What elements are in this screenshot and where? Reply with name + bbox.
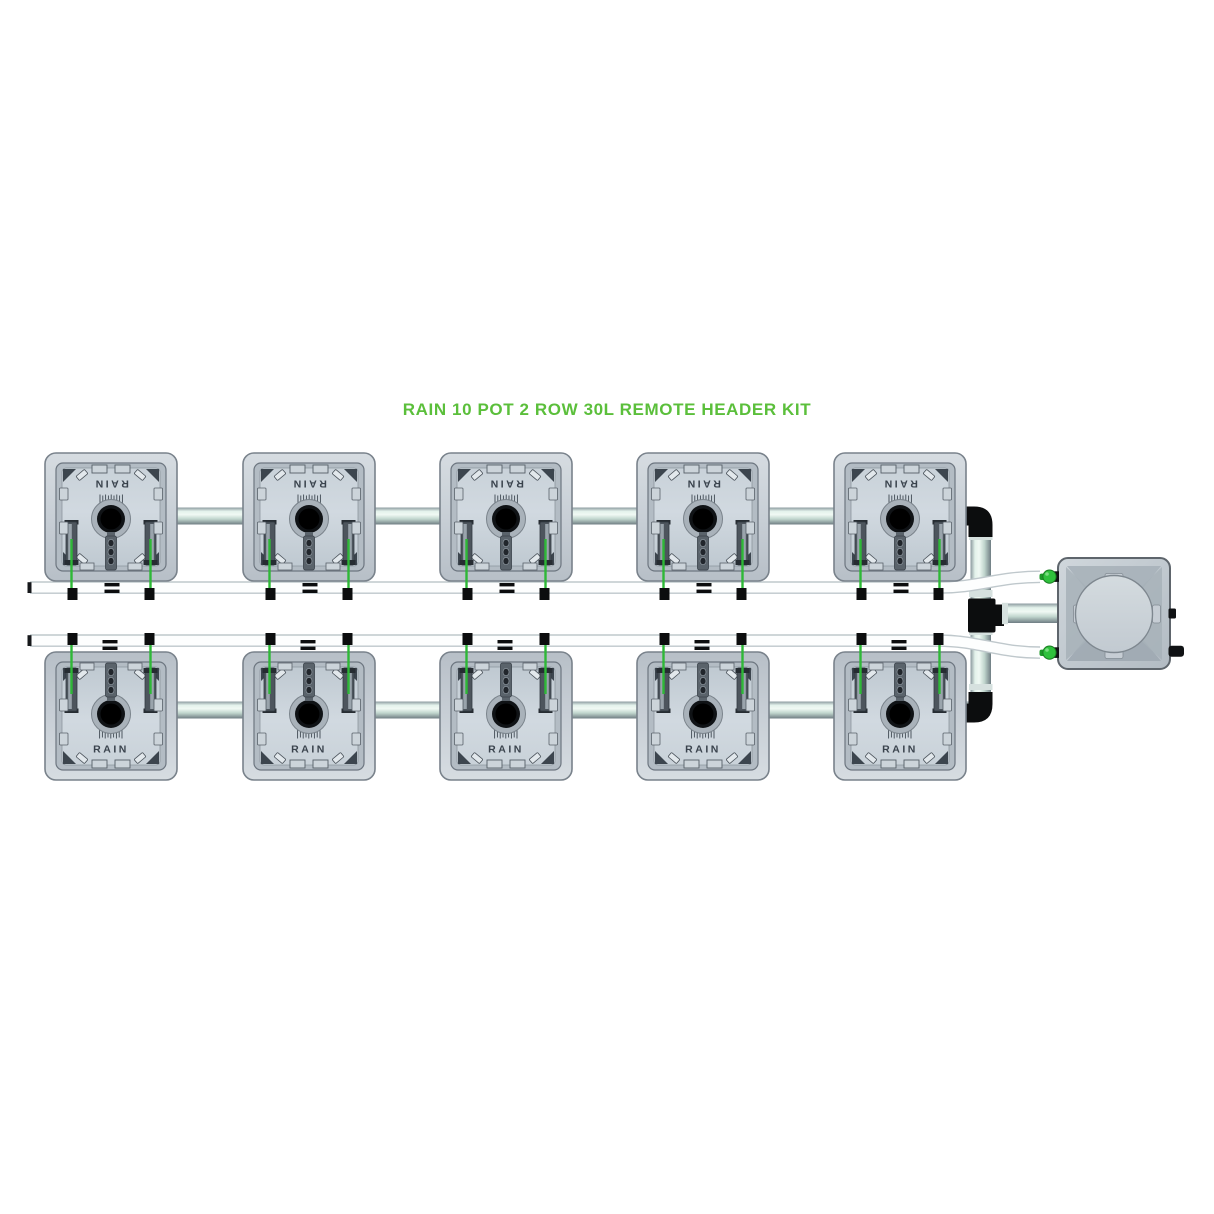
- remote-header-tank: [1040, 558, 1185, 669]
- pot-r1-c2: [243, 453, 375, 600]
- pot-r2-c1: [45, 633, 177, 780]
- tee-fitting: [968, 599, 996, 633]
- tube-end-plug: [28, 635, 32, 646]
- inlet-fitting-top: [1040, 570, 1060, 583]
- pot-r1-c1: [45, 453, 177, 600]
- pot-r1-c4: [637, 453, 769, 600]
- system-diagram: RAIN: [0, 0, 1214, 1214]
- side-port-outlet: [1169, 646, 1185, 657]
- pot-r2-c4: [637, 633, 769, 780]
- kit-diagram: RAIN 10 POT 2 ROW 30L REMOTE HEADER KIT: [0, 0, 1214, 1214]
- pot-r2-c5: [834, 633, 966, 780]
- tank-lid: [1076, 576, 1153, 653]
- pot-r1-c3: [440, 453, 572, 600]
- inlet-fitting-bottom: [1040, 646, 1060, 659]
- pot-r2-c2: [243, 633, 375, 780]
- tube-end-plug: [28, 582, 32, 593]
- pipe-collar: [969, 684, 993, 690]
- pipe-collar: [1002, 603, 1008, 624]
- lid-notch: [1153, 605, 1161, 623]
- pot-r2-c3: [440, 633, 572, 780]
- return-tubes: [28, 577, 1041, 653]
- side-port-small: [1169, 609, 1177, 619]
- pot-r1-c5: [834, 453, 966, 600]
- header-feed-pipe: [1002, 604, 1058, 624]
